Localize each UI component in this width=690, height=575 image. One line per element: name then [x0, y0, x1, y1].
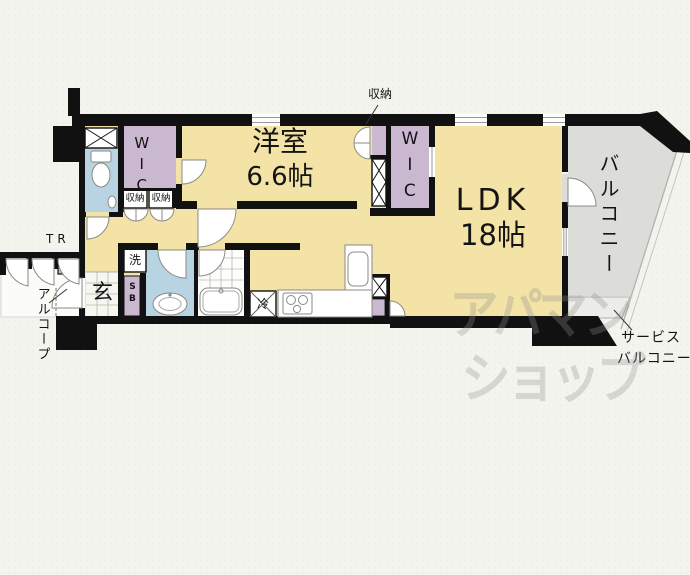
alcove-label: アルコープ [35, 287, 49, 362]
wall-bath-east [244, 245, 250, 318]
closet-strip [372, 126, 386, 157]
watermark-line-1: アパマン [449, 287, 628, 344]
wall-top-left-tick [68, 88, 80, 116]
wall-alcove-top [0, 252, 85, 258]
wall-east-2 [562, 202, 568, 228]
washbasin-tap [168, 293, 171, 296]
wall-wash-bath-sep [194, 250, 198, 318]
gap-toilet-door [86, 212, 109, 217]
wall-west [79, 162, 85, 258]
western-room-name: 洋室 [224, 127, 336, 156]
window-ldk-1 [455, 114, 487, 126]
closet-callout-label: 収納 [368, 88, 392, 101]
balcony-label: バルコニー [597, 153, 618, 278]
entrance-label: 玄 [92, 281, 113, 303]
wall-alcove-left [0, 252, 6, 275]
closet-box-right-label: 収納 [149, 194, 173, 204]
fridge-label: 冷 [257, 298, 269, 311]
toilet-icon [92, 163, 110, 187]
closet-box-left-label: 収納 [123, 194, 147, 204]
gap-yoshitsu-door [197, 201, 237, 209]
window-ldk-2 [543, 114, 565, 126]
wall-entry-north [79, 258, 85, 278]
toilet-corner-basin [108, 196, 116, 208]
gap-wic-left-door [176, 158, 182, 184]
wall-wic-right-west [386, 120, 391, 210]
ldk-name: LDK [436, 185, 550, 217]
wall-left-corner [53, 126, 85, 162]
window-east [562, 228, 568, 256]
kitchen-purple-box [372, 299, 385, 316]
pillar-mid [372, 159, 386, 206]
watermark-line-2: ショップ [461, 351, 641, 408]
trunk-room-label: TR [46, 233, 70, 246]
gap-washroom-door [158, 243, 186, 250]
wic-left-label: WIC [133, 134, 149, 197]
wall-bottom-left-block [56, 316, 97, 350]
wall-entrance-east [118, 243, 124, 318]
balcony-area [568, 126, 678, 296]
western-room-size: 6.6帖 [216, 164, 344, 191]
wall-under-wic-right [370, 208, 435, 216]
toilet-tank [91, 151, 111, 162]
shoebox-label: SB [127, 282, 136, 306]
wic-right-label: WIC [400, 129, 418, 207]
washer-label: 洗 [129, 254, 141, 267]
ldk-size: 18帖 [436, 220, 550, 250]
sink-icon [348, 252, 368, 286]
service-balcony-label-1: サービス [621, 331, 681, 346]
wall-sb-east [140, 273, 146, 318]
stove-icon [283, 293, 312, 314]
wall-east-1 [562, 126, 568, 172]
floorplan-canvas: 洋室 6.6帖 LDK 18帖 WIC WIC 収納 収納 収納 バルコニー サ… [0, 0, 690, 575]
gap-balcony-door [562, 174, 568, 202]
